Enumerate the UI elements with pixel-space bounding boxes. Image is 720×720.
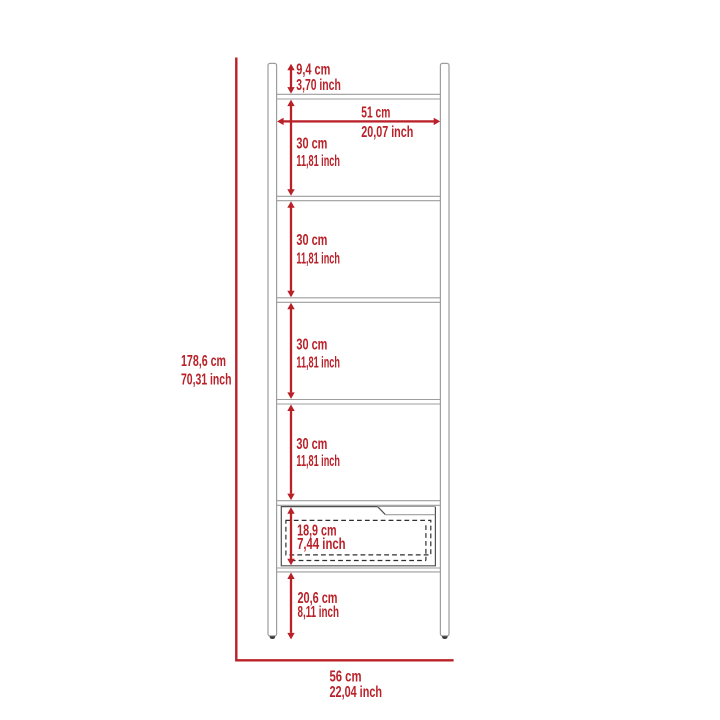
svg-text:7,44 inch: 7,44 inch	[297, 536, 346, 553]
svg-text:56 cm: 56 cm	[330, 668, 362, 685]
svg-text:8,11 inch: 8,11 inch	[298, 604, 340, 621]
svg-text:11,81 inch: 11,81 inch	[296, 453, 340, 470]
svg-text:30 cm: 30 cm	[296, 336, 327, 353]
svg-text:30 cm: 30 cm	[296, 136, 327, 153]
svg-text:3,70 inch: 3,70 inch	[296, 77, 341, 94]
svg-text:11,81 inch: 11,81 inch	[296, 250, 340, 267]
svg-text:70,31 inch: 70,31 inch	[181, 372, 232, 389]
svg-text:11,81 inch: 11,81 inch	[296, 354, 340, 371]
svg-text:51 cm: 51 cm	[361, 105, 390, 122]
svg-text:30 cm: 30 cm	[296, 232, 327, 249]
svg-text:11,81 inch: 11,81 inch	[296, 153, 340, 170]
svg-text:9,4 cm: 9,4 cm	[296, 61, 330, 78]
svg-text:178,6 cm: 178,6 cm	[181, 353, 226, 370]
svg-text:22,04 inch: 22,04 inch	[330, 684, 383, 701]
svg-text:30 cm: 30 cm	[296, 436, 327, 453]
svg-text:20,07 inch: 20,07 inch	[361, 124, 413, 141]
